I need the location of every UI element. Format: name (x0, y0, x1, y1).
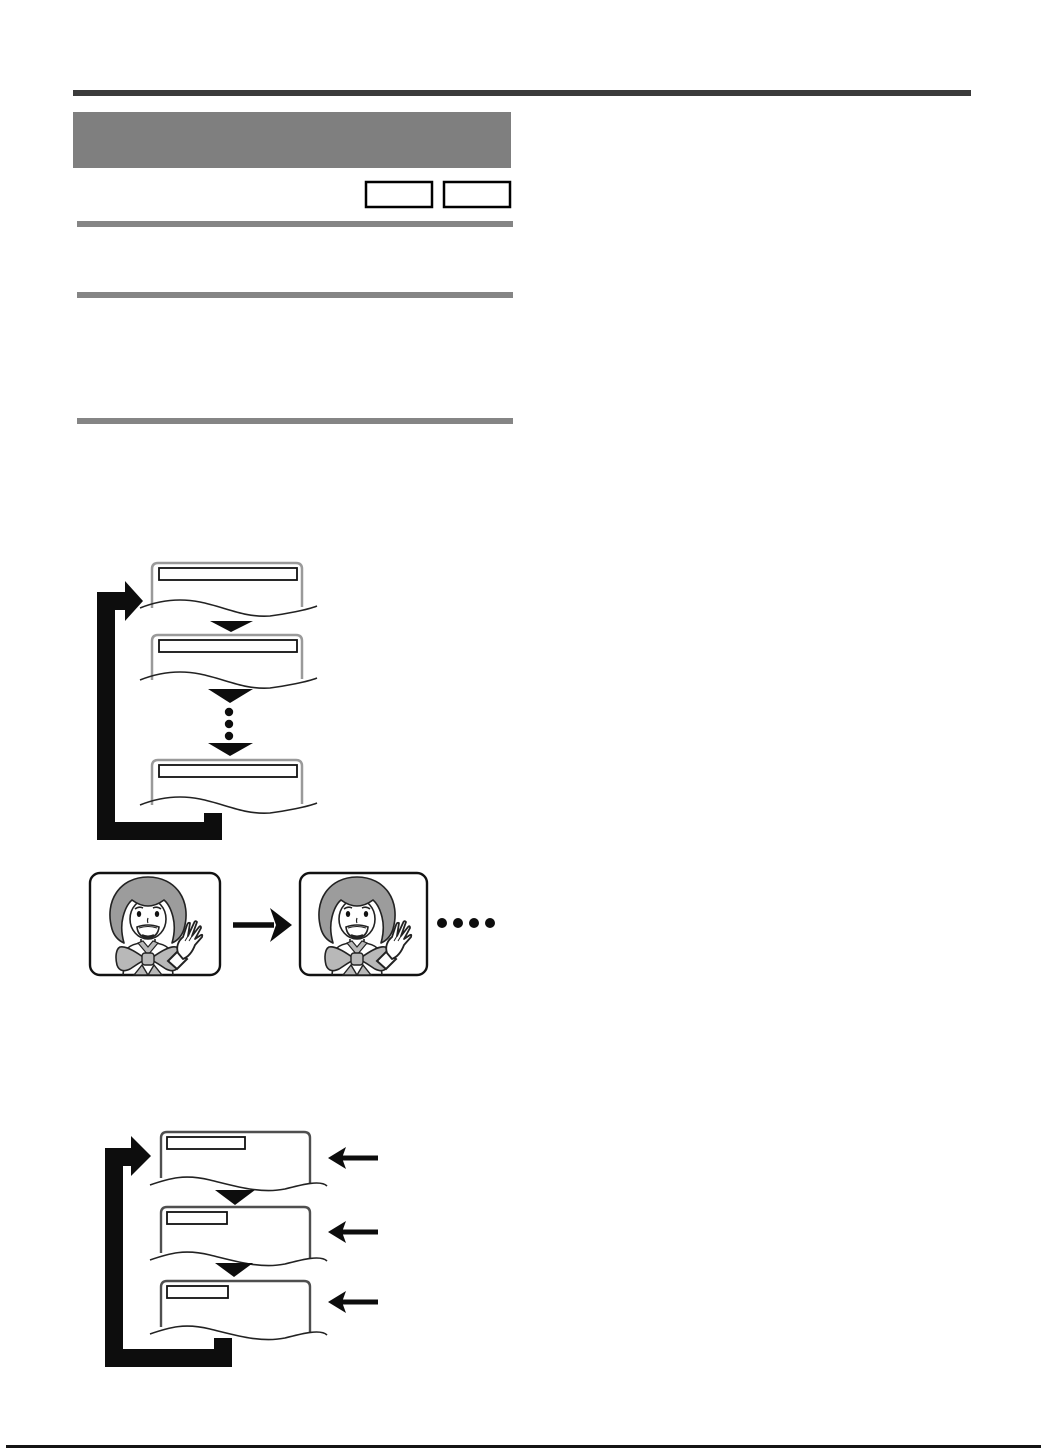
down-arrowhead-icon (210, 621, 253, 632)
screen-titlebar (159, 568, 297, 580)
loop-arrow-left-shaft (105, 1148, 123, 1367)
left-arrow-icon (328, 1291, 378, 1313)
section-bar-2 (77, 292, 513, 298)
top-rule (73, 90, 971, 96)
manual-page (0, 0, 1045, 1451)
dot (225, 708, 233, 716)
menu-screen-1 (150, 1132, 327, 1191)
screen-titlebar (167, 1286, 228, 1298)
bottom-rule (6, 1445, 1041, 1448)
down-arrowhead-icon (215, 1190, 255, 1205)
dot (225, 720, 233, 728)
loop-arrow-bottom-shaft (97, 822, 222, 840)
dot (437, 918, 447, 928)
loop-arrow-start-stub (204, 813, 222, 840)
right-arrow-icon (233, 908, 292, 942)
screen-titlebar (159, 640, 297, 652)
section-bar-3 (77, 418, 513, 424)
figure-menu-loop (85, 550, 335, 850)
left-arrow-icon (328, 1221, 378, 1243)
loop-arrow-elbow (115, 592, 126, 610)
footer-band (0, 1438, 1045, 1451)
vertical-ellipsis-dots (225, 708, 233, 740)
dot (469, 918, 479, 928)
down-arrowhead-icon (215, 1263, 253, 1277)
menu-screen-2 (140, 635, 317, 688)
menu-screen-3 (150, 1281, 327, 1340)
loop-arrow-left-shaft (97, 592, 115, 840)
key-box-1 (366, 182, 432, 207)
left-arrow-icon (328, 1147, 378, 1169)
screen-titlebar (167, 1137, 245, 1149)
header-band (0, 0, 1045, 450)
section-title-block (73, 112, 511, 168)
horizontal-ellipsis-dots (437, 918, 495, 928)
loop-arrow-head (125, 581, 143, 621)
dot (225, 732, 233, 740)
menu-screen-2 (150, 1207, 327, 1266)
menu-screen-1 (140, 563, 317, 616)
key-box-2 (444, 182, 510, 207)
loop-arrow-head (131, 1136, 151, 1176)
section-bar-1 (77, 221, 513, 227)
loop-arrow-elbow (123, 1148, 132, 1166)
menu-screen-3 (140, 760, 317, 813)
dot (485, 918, 495, 928)
loop-arrow-start-stub (214, 1338, 232, 1367)
loop-arrow-bottom-shaft (105, 1349, 232, 1367)
screen-titlebar (159, 765, 297, 777)
down-arrowhead-icon (208, 689, 253, 703)
screen-titlebar (167, 1212, 227, 1224)
dot (453, 918, 463, 928)
down-arrowhead-icon (208, 743, 253, 756)
figure-repeat-playback (85, 865, 515, 990)
figure-menu-loop-with-inputs (95, 1125, 395, 1380)
